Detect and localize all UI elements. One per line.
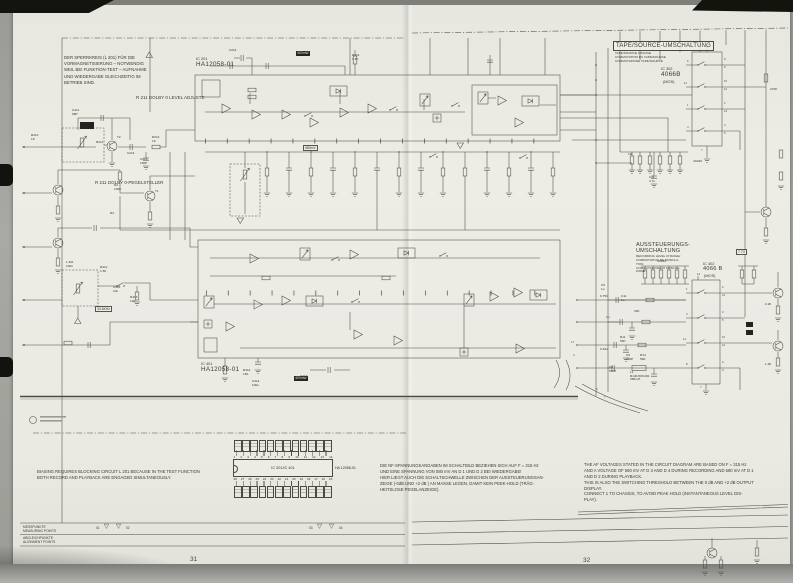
legend-alignment-points: ABGLEICHPUNKTE ALIGNMENT POINTS bbox=[23, 536, 55, 544]
component-label: C8 560P bbox=[609, 366, 616, 373]
component-label: R212 1K bbox=[152, 136, 159, 143]
component-label: 270K bbox=[770, 88, 777, 92]
component-label: 12 bbox=[724, 88, 727, 91]
component-label: 13 bbox=[722, 294, 725, 297]
ic302-tech: (MOS) bbox=[663, 79, 674, 84]
pin-value-box bbox=[283, 440, 291, 452]
component-label: T2 bbox=[117, 136, 121, 140]
pin-value-boxes-bottom bbox=[233, 486, 333, 496]
component-label: 5 bbox=[596, 388, 598, 391]
measuring-point-triangle-icon: ▽ bbox=[104, 524, 109, 531]
component-label: 8 bbox=[686, 363, 688, 366]
page-number-left: 31 bbox=[190, 556, 197, 563]
pin-value-box bbox=[234, 486, 242, 498]
component-label: 12 bbox=[722, 344, 725, 347]
page-number-right: 32 bbox=[583, 557, 590, 564]
pin-number: 16 bbox=[322, 478, 325, 481]
component-label: 9 bbox=[722, 369, 724, 372]
component-label: R214 1.5K bbox=[352, 54, 359, 61]
pin-value-box bbox=[234, 440, 242, 452]
component-label: 2 bbox=[722, 286, 724, 289]
component-label: 10 bbox=[724, 80, 727, 83]
component-label: 13 bbox=[724, 110, 727, 113]
ic-notch bbox=[234, 465, 239, 473]
legend-measuring-points: MESSPUNKTE MEASURING POINTS bbox=[23, 525, 56, 533]
component-label: 5 bbox=[724, 132, 726, 135]
component-label: C11 1u bbox=[621, 295, 626, 302]
component-label: R2 100K bbox=[114, 184, 121, 191]
component-label: T1 bbox=[155, 190, 159, 194]
component-label: 17 bbox=[571, 341, 574, 344]
pin-value-box bbox=[292, 486, 300, 498]
component-label: 600mW bbox=[296, 51, 310, 56]
pin-value-boxes-top bbox=[233, 440, 333, 450]
component-label: 580mV bbox=[303, 145, 318, 151]
component-label: 7.7V bbox=[736, 249, 747, 255]
pin-value-box bbox=[267, 486, 275, 498]
pin-value-box bbox=[300, 486, 308, 498]
note-biasing-en: BIASING REQUIRES BLOCKING CIRCUIT L 201 … bbox=[37, 469, 247, 481]
pin-number: 28 bbox=[234, 478, 237, 481]
measuring-point-number: 02 bbox=[126, 526, 130, 530]
component-label: 1M bbox=[628, 153, 632, 157]
component-label: R211 bbox=[96, 141, 103, 145]
component-label: 0.33u bbox=[600, 348, 608, 352]
measuring-point-number: 01 bbox=[96, 526, 100, 530]
component-label: 7 bbox=[701, 149, 703, 152]
component-label: 8 bbox=[724, 66, 726, 69]
component-label: L1 R140-509-001 380mH bbox=[630, 371, 650, 382]
component-label: 7 bbox=[604, 396, 606, 399]
measuring-point-triangle-icon: ▽ bbox=[116, 524, 121, 531]
component-label: R414 150 bbox=[243, 369, 250, 376]
component-label: R413 100 bbox=[130, 296, 137, 303]
component-label: L 201 100u bbox=[66, 261, 74, 268]
label-dolby-level-adjust-en: R 211 DOLBY 0 LEVEL ADJUSTE bbox=[136, 95, 204, 100]
pin-number: 26 bbox=[248, 478, 251, 481]
component-label: 1u bbox=[606, 316, 609, 320]
pin-number: 17 bbox=[314, 478, 317, 481]
section-subtitle-level-switch: RECORDING LEVEL CHANGE/ COMMUTATION DE M… bbox=[636, 255, 680, 274]
pin-value-box bbox=[242, 440, 250, 452]
component-label: 2.2K bbox=[765, 303, 771, 307]
component-label: R13 56K bbox=[640, 354, 646, 361]
component-label: R412 1.5K bbox=[100, 266, 107, 273]
component-label: C413 10u bbox=[300, 375, 307, 382]
ic302-part: 4066B bbox=[661, 71, 681, 78]
component-label: 6 bbox=[722, 361, 724, 364]
note-blocking-circuit-de: DER SPERRKREIS (L 201) FÜR DIE VORMAGNET… bbox=[64, 55, 186, 86]
component-label: 9 bbox=[724, 58, 726, 61]
component-label: 6 bbox=[687, 60, 689, 63]
pin-value-box bbox=[308, 440, 316, 452]
pin-number: 27 bbox=[241, 478, 244, 481]
pin-value-box bbox=[324, 486, 332, 498]
pin-number: 15 bbox=[329, 478, 332, 481]
pin-value-box bbox=[292, 440, 300, 452]
pin-number: 25 bbox=[256, 478, 259, 481]
component-label: 14 bbox=[697, 273, 700, 276]
section-title-tape-source: TAPE/SOURCE-UMSCHALTUNG bbox=[613, 41, 714, 51]
component-label: 4 bbox=[573, 354, 575, 357]
pin-number: 19 bbox=[300, 478, 303, 481]
component-label: 5 bbox=[722, 319, 724, 322]
pinout-title: IC 201/IC 401 bbox=[271, 466, 294, 470]
pin-number: 23 bbox=[270, 478, 273, 481]
ic401-part: HA12058-01 bbox=[201, 366, 239, 373]
pin-number: 21 bbox=[285, 478, 288, 481]
legend-strip: MESSPUNKTE MEASURING POINTS ABGLEICHPUNK… bbox=[20, 523, 788, 546]
component-label: C214 bbox=[229, 49, 236, 53]
measuring-point-triangle-icon: ▽ bbox=[317, 524, 322, 531]
pinout-part-number: HA 12058-01 bbox=[335, 466, 356, 470]
component-label: 33.6KHz bbox=[95, 306, 112, 312]
component-label: R213 1K bbox=[31, 134, 38, 141]
scanned-schematic-spread: C214R214 1.5KC211 68PR213 1KR211T2C212R2… bbox=[0, 0, 793, 583]
ic-pinout-diagram: 1234567891011121314 IC 201/IC 401 HA 120… bbox=[233, 440, 333, 496]
pin-value-box bbox=[300, 440, 308, 452]
component-label: C213 150P bbox=[140, 158, 147, 165]
section-title-level-switch: AUSSTEUERUNGS- UMSCHALTUNG bbox=[636, 242, 690, 254]
measuring-point-number: 04 bbox=[339, 526, 343, 530]
pin-value-box bbox=[242, 486, 250, 498]
component-label: 11 bbox=[683, 338, 686, 341]
pin-value-box bbox=[316, 486, 324, 498]
section-subtitle-tape-source: TAPE/SOURCE CHANGE COMMUTATION DU TAPE/S… bbox=[615, 52, 666, 64]
component-label: 3 bbox=[722, 311, 724, 314]
pin-value-box bbox=[283, 486, 291, 498]
measuring-point-number: 03 bbox=[309, 526, 313, 530]
component-label: C6 220P bbox=[626, 354, 633, 361]
pin-value-box bbox=[250, 486, 258, 498]
pin-value-box bbox=[267, 440, 275, 452]
pin-value-box bbox=[275, 440, 283, 452]
component-label: 1 bbox=[687, 104, 689, 107]
component-label: R3 bbox=[110, 212, 114, 216]
component-label: C212 bbox=[127, 152, 134, 156]
pinout-ic-body: IC 201/IC 401 HA 12058-01 bbox=[233, 459, 333, 477]
component-label: R11 56K bbox=[620, 336, 626, 343]
component-label: 4 bbox=[687, 126, 689, 129]
component-label: C211 68P bbox=[72, 109, 79, 116]
pin-value-box bbox=[316, 440, 324, 452]
pin-value-box bbox=[308, 486, 316, 498]
component-label: 10 bbox=[722, 336, 725, 339]
note-af-voltages-de: DIE NF-SPANNUNGSANGABEN IM SCHALTBILD BE… bbox=[380, 463, 580, 492]
pin-value-box bbox=[275, 486, 283, 498]
component-label: C412 10u bbox=[113, 286, 120, 293]
component-label: 33K bbox=[634, 310, 640, 314]
pin-value-box bbox=[324, 440, 332, 452]
component-label: 1 bbox=[686, 288, 688, 291]
note-af-voltages-en: THE AF VOLTAGES STATED IN THE CIRCUIT DI… bbox=[584, 462, 787, 503]
component-label: 4X22K bbox=[693, 160, 702, 164]
component-label: 4 bbox=[686, 313, 688, 316]
pin-number: 22 bbox=[278, 478, 281, 481]
pin-number: 20 bbox=[292, 478, 295, 481]
pin-number: 18 bbox=[307, 478, 310, 481]
pin-value-box bbox=[250, 440, 258, 452]
component-label: 7 bbox=[700, 386, 702, 389]
legend-row-en: MEASURING POINTS bbox=[23, 529, 56, 533]
component-label: C11 4.7u bbox=[649, 176, 655, 183]
component-label: 2 bbox=[724, 102, 726, 105]
pin-number: 24 bbox=[263, 478, 266, 481]
ic201-part: HA12058-01 bbox=[196, 61, 234, 68]
pin-value-box bbox=[259, 440, 267, 452]
ic402-tech: (MOS) bbox=[704, 273, 715, 278]
pin-value-box bbox=[259, 486, 267, 498]
component-label: 6.75V bbox=[600, 295, 608, 299]
component-label: C5 1u bbox=[601, 284, 605, 291]
ic402-part: 4066 B bbox=[703, 266, 723, 272]
component-label: 3 bbox=[724, 124, 726, 127]
component-label: 1.2K bbox=[765, 363, 771, 367]
label-dolby-level-adjust-de: R 211 DOLBY 0-PEGELSTELLER bbox=[95, 180, 163, 185]
component-label: 11 bbox=[684, 82, 687, 85]
legend-row-en: ALIGNMENT POINTS bbox=[23, 540, 55, 544]
component-label: C414 100u bbox=[252, 380, 259, 387]
measuring-point-triangle-icon: ▽ bbox=[329, 524, 334, 531]
